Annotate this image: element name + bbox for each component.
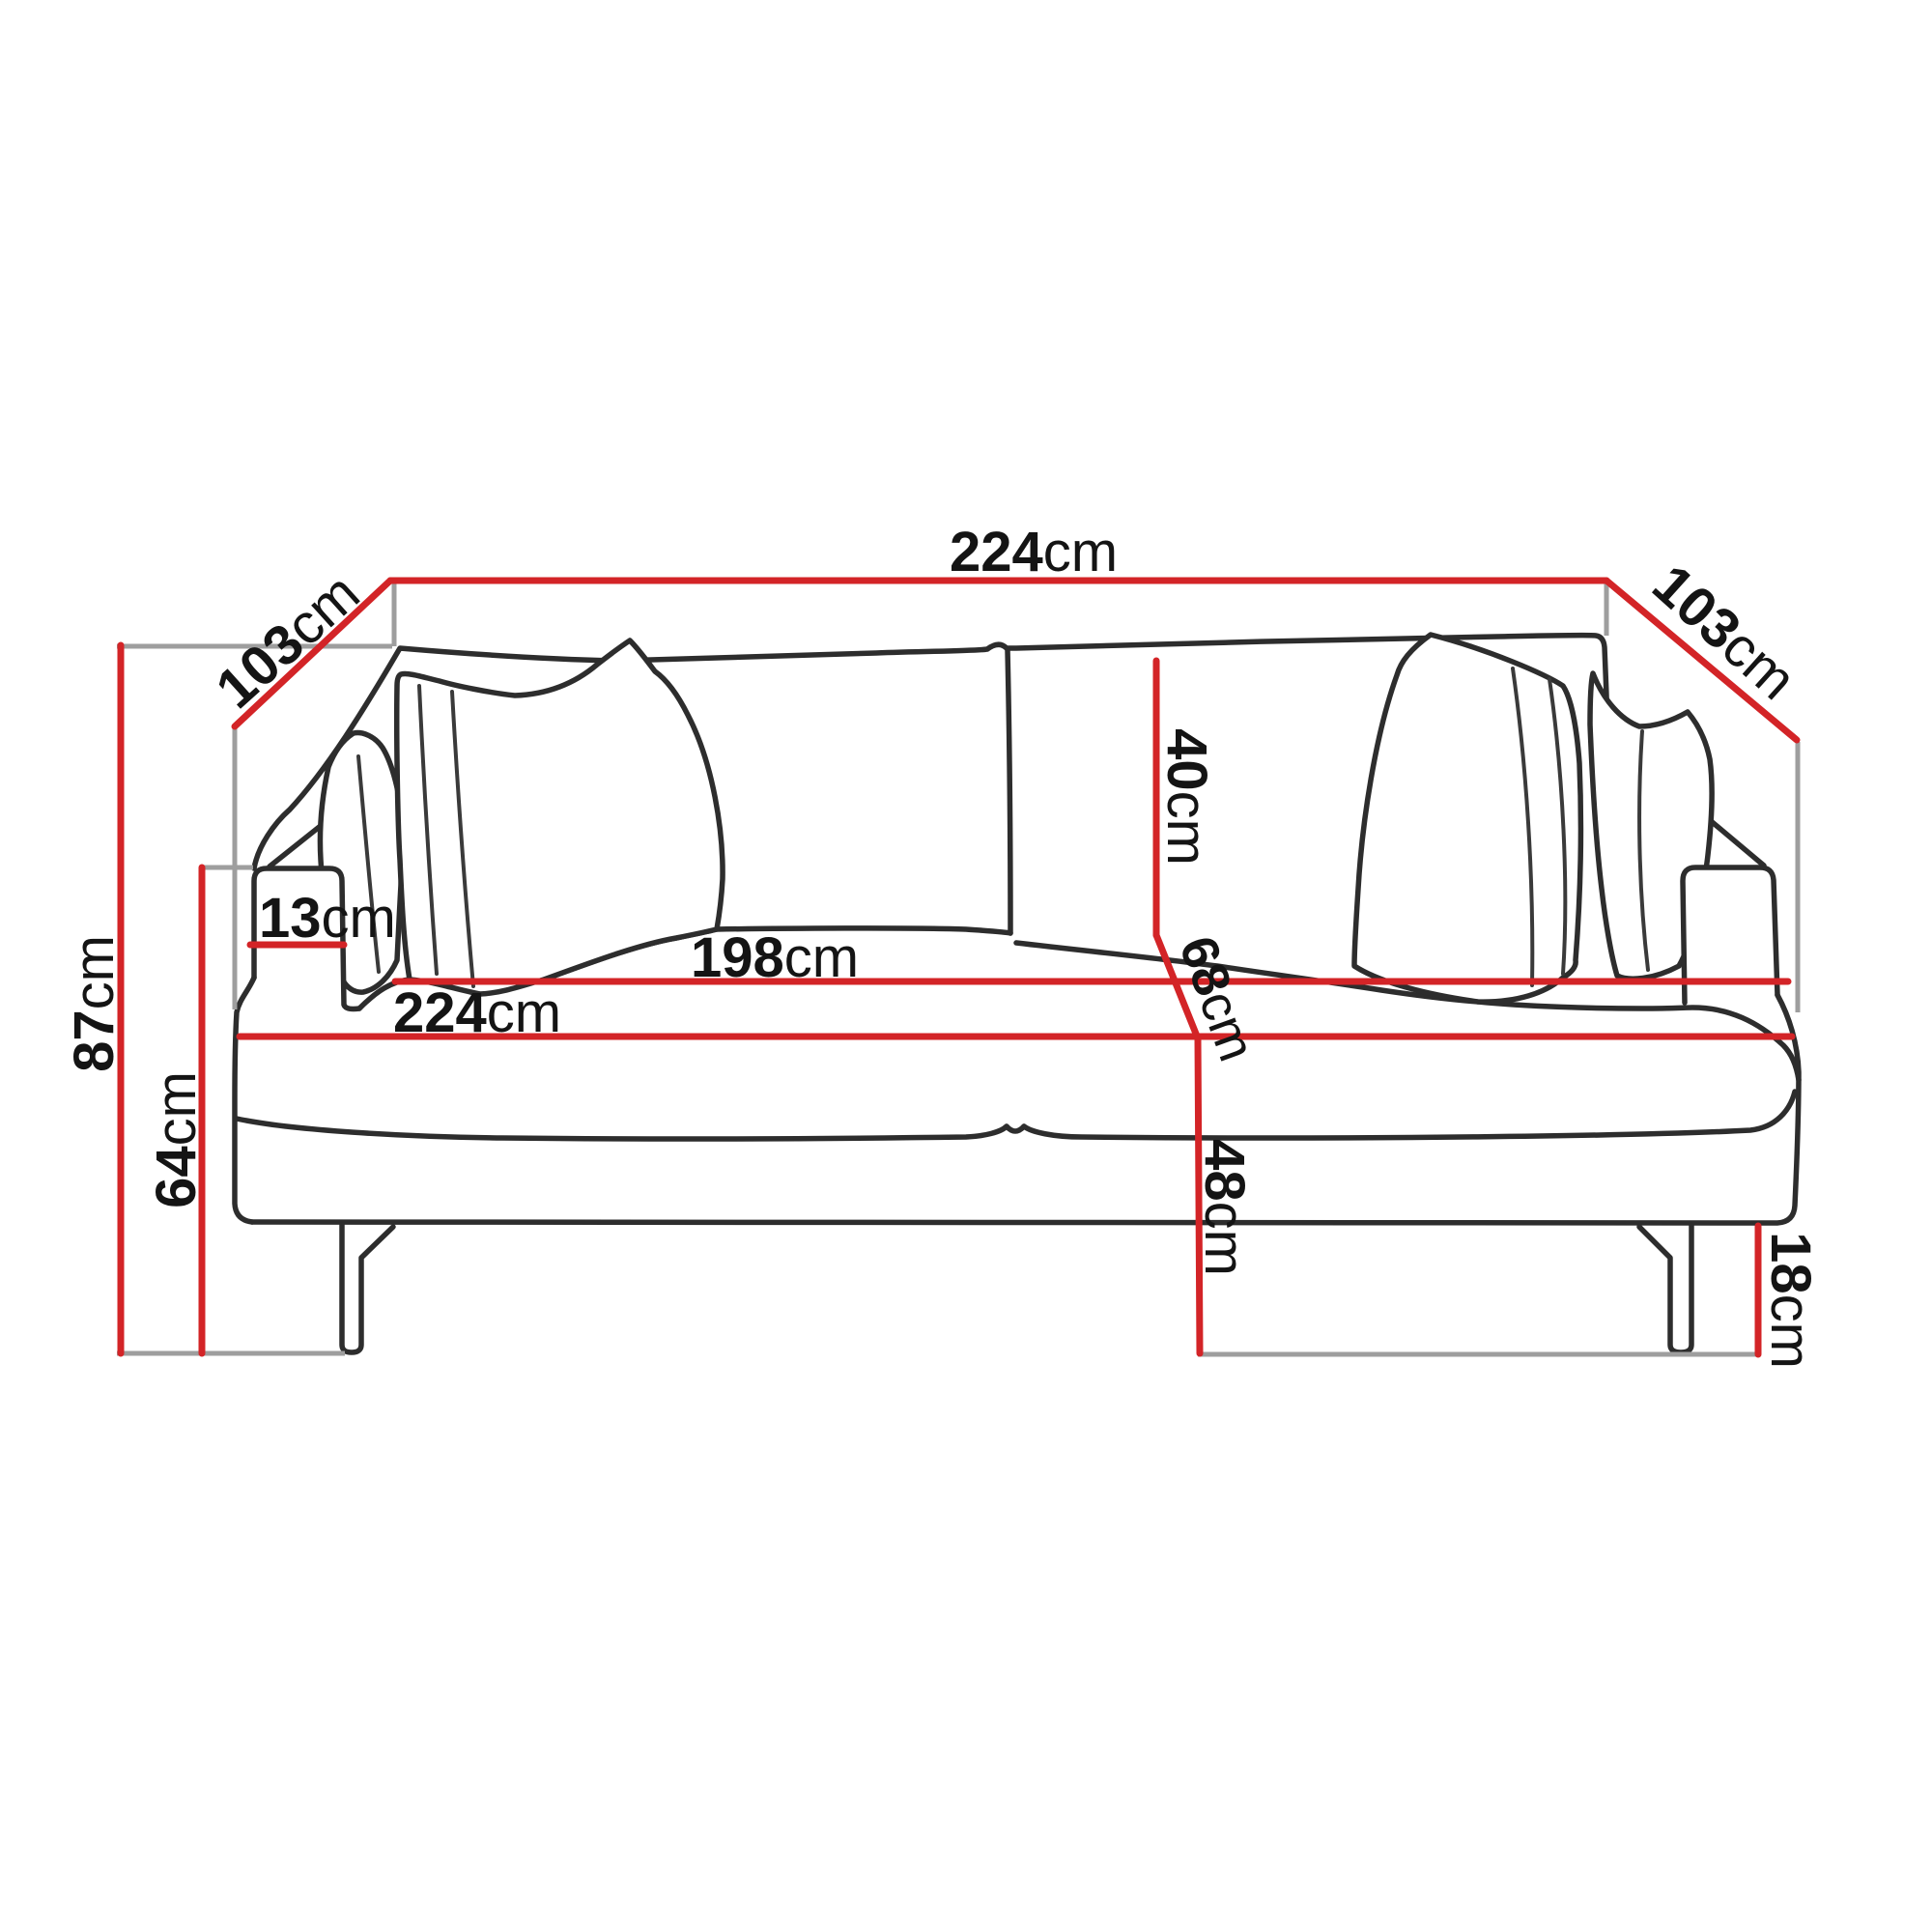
svg-text:224cm: 224cm (950, 521, 1118, 583)
svg-text:40cm: 40cm (1155, 728, 1218, 866)
svg-text:18cm: 18cm (1759, 1232, 1822, 1369)
svg-text:198cm: 198cm (691, 926, 859, 989)
svg-text:64cm: 64cm (145, 1071, 208, 1208)
svg-text:48cm: 48cm (1193, 1139, 1256, 1276)
svg-text:224cm: 224cm (393, 981, 561, 1044)
svg-text:13cm: 13cm (259, 887, 396, 950)
svg-text:87cm: 87cm (63, 935, 126, 1072)
